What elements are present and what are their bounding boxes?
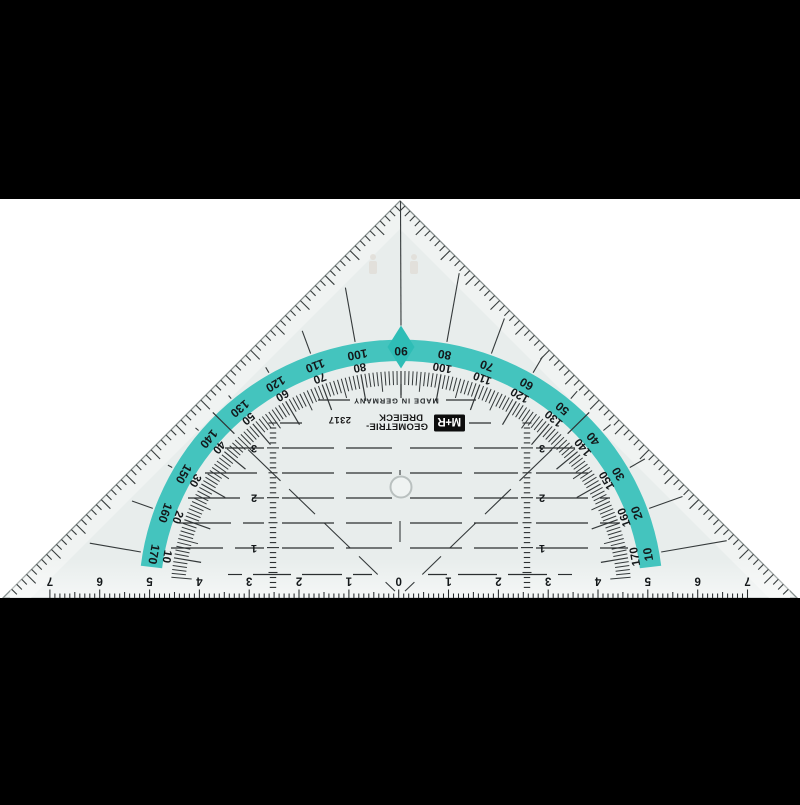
svg-text:2: 2: [495, 574, 501, 586]
svg-text:0: 0: [395, 574, 401, 586]
svg-text:90: 90: [394, 344, 408, 358]
svg-text:1: 1: [445, 574, 452, 586]
svg-text:3: 3: [539, 442, 545, 454]
svg-text:5: 5: [644, 574, 651, 586]
svg-text:1: 1: [539, 542, 545, 554]
svg-text:4: 4: [196, 574, 203, 586]
svg-text:2: 2: [296, 574, 302, 586]
svg-text:3: 3: [246, 574, 252, 586]
svg-text:DREIECK: DREIECK: [379, 412, 423, 423]
svg-text:10: 10: [159, 549, 173, 564]
svg-text:2: 2: [539, 492, 545, 504]
svg-text:1: 1: [345, 574, 352, 586]
svg-text:6: 6: [694, 574, 700, 586]
svg-text:4: 4: [594, 574, 601, 586]
svg-text:80: 80: [352, 360, 367, 374]
svg-text:M+R: M+R: [437, 415, 461, 427]
svg-text:7: 7: [744, 574, 750, 586]
svg-text:2: 2: [251, 492, 257, 504]
svg-text:MADE IN GERMANY: MADE IN GERMANY: [353, 396, 439, 405]
svg-text:1: 1: [251, 542, 257, 554]
svg-text:5: 5: [146, 574, 153, 586]
svg-text:3: 3: [251, 442, 257, 454]
svg-text:3: 3: [545, 574, 551, 586]
svg-text:10: 10: [640, 546, 656, 562]
svg-text:2317: 2317: [328, 414, 351, 425]
svg-text:7: 7: [47, 574, 53, 586]
svg-text:6: 6: [96, 574, 102, 586]
